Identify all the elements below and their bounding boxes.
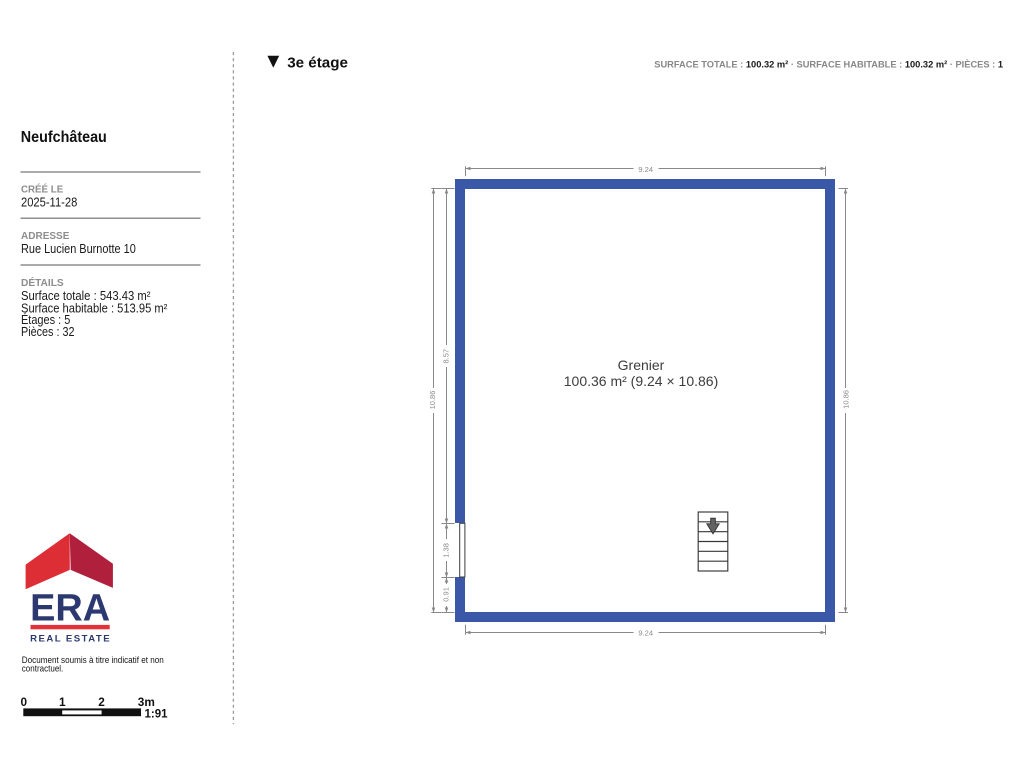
svg-text:9.24: 9.24 bbox=[638, 629, 653, 638]
svg-text:1:91: 1:91 bbox=[145, 709, 169, 721]
svg-text:10.86: 10.86 bbox=[841, 390, 850, 409]
svg-text:Pièces : 32: Pièces : 32 bbox=[21, 324, 75, 339]
svg-text:0: 0 bbox=[21, 695, 28, 709]
svg-text:0.91: 0.91 bbox=[442, 587, 451, 602]
svg-text:CRÉÉ LE: CRÉÉ LE bbox=[21, 182, 63, 195]
svg-text:SURFACE TOTALE : 100.32 m² · S: SURFACE TOTALE : 100.32 m² · SURFACE HAB… bbox=[654, 60, 1003, 70]
svg-text:REAL ESTATE: REAL ESTATE bbox=[30, 633, 110, 644]
svg-text:Rue Lucien Burnotte 10: Rue Lucien Burnotte 10 bbox=[21, 241, 136, 256]
svg-text:2025-11-28: 2025-11-28 bbox=[21, 195, 77, 210]
svg-text:ERA: ERA bbox=[30, 587, 110, 629]
svg-text:1: 1 bbox=[59, 695, 66, 709]
svg-text:Grenier: Grenier bbox=[618, 357, 665, 373]
svg-text:9.24: 9.24 bbox=[638, 165, 653, 174]
svg-text:10.86: 10.86 bbox=[428, 391, 437, 410]
svg-text:3e étage: 3e étage bbox=[287, 54, 348, 71]
svg-text:8.57: 8.57 bbox=[442, 349, 451, 364]
svg-text:Neufchâteau: Neufchâteau bbox=[21, 129, 107, 146]
svg-text:contractuel.: contractuel. bbox=[22, 663, 64, 673]
svg-text:100.36 m² (9.24 × 10.86): 100.36 m² (9.24 × 10.86) bbox=[564, 373, 719, 389]
svg-text:2: 2 bbox=[98, 695, 105, 709]
svg-text:3m: 3m bbox=[138, 695, 155, 709]
svg-text:1.38: 1.38 bbox=[442, 543, 451, 558]
